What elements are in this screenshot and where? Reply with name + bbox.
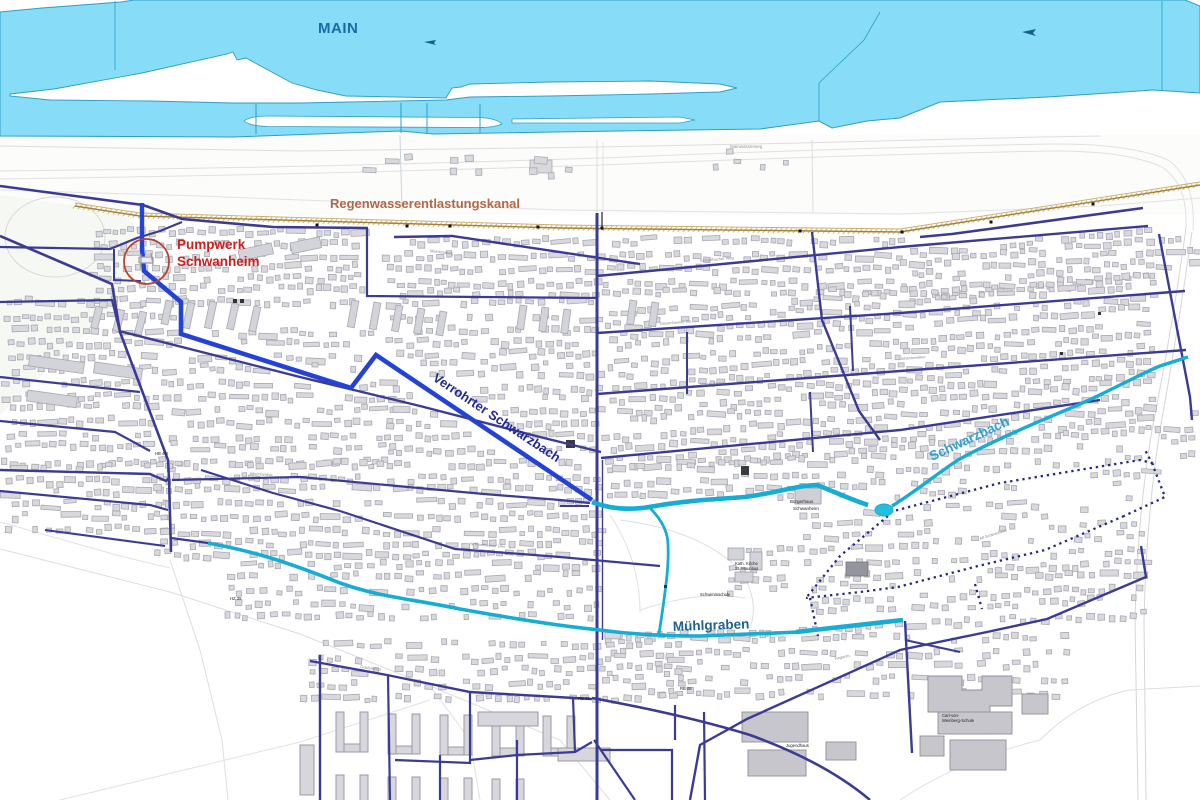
svg-text:RB 08: RB 08 [680,686,692,691]
svg-text:Schwanheim: Schwanheim [177,254,260,269]
svg-text:HB 4W: HB 4W [155,451,168,456]
svg-text:Weinberg-Schule: Weinberg-Schule [942,718,975,723]
svg-text:Bürgerhaus: Bürgerhaus [790,499,814,504]
svg-text:Regenwasserentlastungskanal: Regenwasserentlastungskanal [330,196,520,211]
svg-text:Hegarstr.: Hegarstr. [834,653,851,661]
svg-text:Pumpwerk: Pumpwerk [177,237,246,252]
svg-text:Alt Schwanheim: Alt Schwanheim [979,527,1008,541]
svg-text:MAIN: MAIN [318,20,358,37]
svg-text:Mühlgraben: Mühlgraben [673,616,750,634]
svg-text:Schwanheim: Schwanheim [793,506,819,511]
svg-text:Martinskirchstr.: Martinskirchstr. [700,380,727,387]
svg-text:HZ 35: HZ 35 [230,596,242,601]
svg-text:Johannesallee: Johannesallee [900,354,927,361]
svg-text:Mainwasserweg: Mainwasserweg [730,144,763,149]
svg-text:Jugendhaus: Jugendhaus [786,743,809,748]
svg-text:Kelsterbacher Weg: Kelsterbacher Weg [700,255,734,263]
svg-text:RB 09: RB 09 [578,696,590,701]
svg-text:Geisenheimer Str.: Geisenheimer Str. [660,319,692,326]
svg-text:St. Mauritius: St. Mauritius [735,566,758,571]
svg-text:Schwimmschule: Schwimmschule [700,592,731,597]
